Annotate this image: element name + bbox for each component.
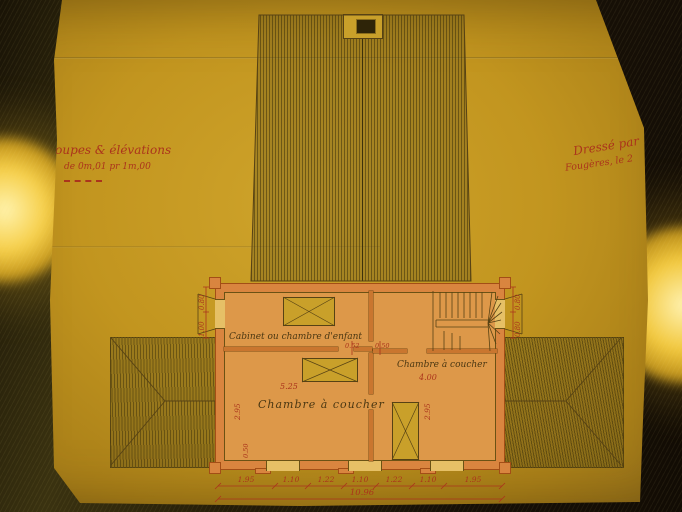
partition-vertical-b xyxy=(369,353,373,394)
roof-ridge-line xyxy=(362,15,363,282)
scale-note-underline xyxy=(64,180,102,182)
dim-bedroom-left-width: 5.25 xyxy=(280,383,298,391)
photographed-plan: Coupes & élévations de 0m,01 pr 1m,00 Dr… xyxy=(0,0,682,512)
roof-wing-left xyxy=(110,337,217,468)
wardrobe-block-right-room xyxy=(392,402,419,460)
window-bottom-2 xyxy=(348,461,382,471)
window-left-dormer xyxy=(215,299,225,329)
corner-pilaster-ne xyxy=(499,277,511,289)
dim-left-wall-upper: 0.80 xyxy=(199,294,206,310)
dim-bottom-3: 1.22 xyxy=(318,476,335,484)
dim-right-wall-lower: 0.80 xyxy=(515,321,522,337)
dim-bedroom-right-width: 4.00 xyxy=(419,374,437,382)
partition-vertical-c xyxy=(369,410,373,461)
dim-center-b: 0.50 xyxy=(375,343,389,350)
dim-bottom-7: 1.95 xyxy=(465,476,482,484)
dim-bottom-5: 1.22 xyxy=(386,476,403,484)
chimney xyxy=(343,14,383,39)
room-label-bedroom-left: Chambre à coucher xyxy=(258,399,385,410)
partition-horizontal-right-b xyxy=(427,349,497,353)
closet-block-child-room xyxy=(283,297,335,326)
corner-pilaster-se xyxy=(499,462,511,474)
room-label-child-room: Cabinet ou chambre d'enfant xyxy=(229,333,362,342)
partition-horizontal-left-a xyxy=(224,347,338,351)
scale-note-line1: Coupes & élévations xyxy=(46,144,171,156)
dim-bottom-1: 1.95 xyxy=(238,476,255,484)
chimney-flue xyxy=(356,19,376,34)
dim-right-wall-upper: 0.80 xyxy=(515,294,522,310)
dim-bottom-2: 1.10 xyxy=(283,476,300,484)
dim-bottom-total: 10.96 xyxy=(350,489,374,498)
corner-pilaster-nw xyxy=(209,277,221,289)
window-bottom-3 xyxy=(430,461,464,471)
dim-corner-left: 0.50 xyxy=(243,444,250,458)
floorplan-interior xyxy=(224,292,496,461)
roof-plan-main xyxy=(251,15,471,282)
window-bottom-1 xyxy=(266,461,300,471)
dim-left-wall-lower: 1.00 xyxy=(199,321,206,337)
dim-bottom-6: 1.10 xyxy=(420,476,437,484)
scale-note-line2: de 0m,01 pr 1m,00 xyxy=(64,163,151,172)
partition-vertical-a xyxy=(369,291,373,341)
window-right-dormer xyxy=(495,299,505,329)
roof-wing-right xyxy=(500,337,624,468)
corner-pilaster-sw xyxy=(209,462,221,474)
dim-bedroom-right-depth: 2.95 xyxy=(424,403,432,420)
room-label-bedroom-right: Chambre à coucher xyxy=(397,361,487,370)
dim-bottom-4: 1.10 xyxy=(352,476,369,484)
dim-center-a: 0.52 xyxy=(345,343,359,350)
dim-bedroom-left-depth: 2.95 xyxy=(234,403,242,420)
drawing-sheet: Coupes & élévations de 0m,01 pr 1m,00 Dr… xyxy=(0,0,682,512)
flue-block-center xyxy=(302,358,358,382)
